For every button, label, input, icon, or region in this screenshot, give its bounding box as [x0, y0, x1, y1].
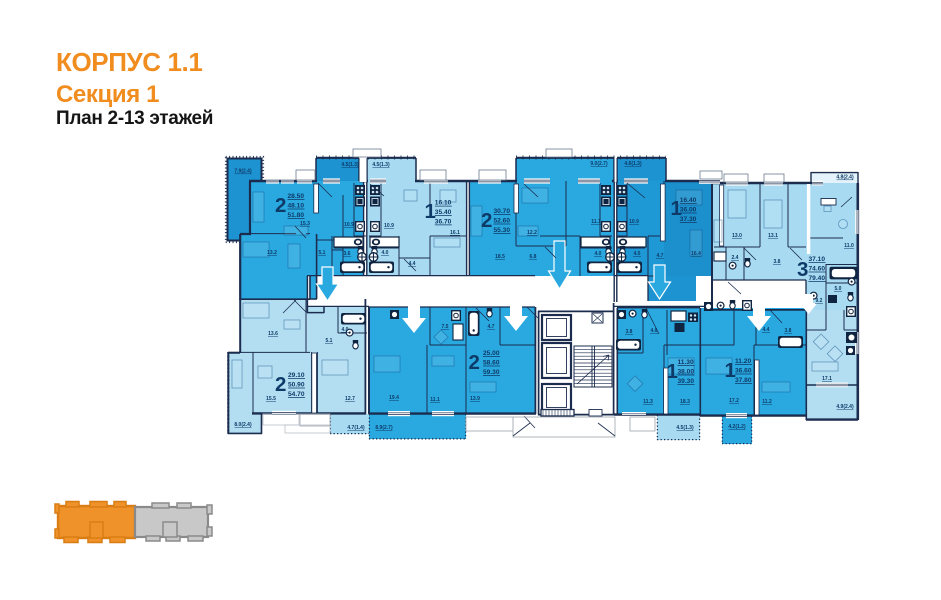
svg-text:3: 3	[797, 258, 808, 281]
svg-text:11.30: 11.30	[678, 359, 694, 366]
svg-text:37.80: 37.80	[735, 377, 752, 384]
svg-text:38.00: 38.00	[678, 368, 695, 375]
svg-text:35.40: 35.40	[435, 209, 452, 216]
svg-text:58.60: 58.60	[483, 359, 500, 366]
svg-text:2: 2	[275, 194, 286, 217]
svg-text:28.50: 28.50	[288, 193, 305, 200]
svg-text:1: 1	[667, 360, 678, 383]
svg-text:2: 2	[275, 373, 286, 396]
svg-text:52.60: 52.60	[494, 217, 511, 224]
svg-text:36.60: 36.60	[735, 367, 752, 374]
svg-text:16.10: 16.10	[435, 200, 452, 207]
svg-text:51.80: 51.80	[288, 212, 305, 219]
svg-text:54.70: 54.70	[288, 391, 305, 398]
svg-text:36.70: 36.70	[435, 218, 452, 225]
svg-text:16.40: 16.40	[680, 197, 697, 204]
svg-text:30.70: 30.70	[494, 208, 511, 215]
svg-text:50.90: 50.90	[288, 381, 305, 388]
svg-text:36.00: 36.00	[680, 206, 697, 213]
svg-text:55.30: 55.30	[494, 227, 511, 234]
svg-text:79.40: 79.40	[809, 275, 826, 282]
svg-text:29.10: 29.10	[288, 372, 305, 379]
svg-text:59.30: 59.30	[483, 369, 500, 376]
svg-text:2: 2	[481, 209, 492, 232]
svg-text:48.10: 48.10	[288, 202, 305, 209]
svg-text:74.60: 74.60	[809, 265, 826, 272]
svg-text:39.30: 39.30	[678, 378, 695, 385]
svg-text:2: 2	[469, 351, 480, 374]
svg-text:11.20: 11.20	[735, 358, 751, 365]
svg-text:37.30: 37.30	[680, 216, 697, 223]
svg-text:37.10: 37.10	[809, 256, 826, 263]
svg-text:25.00: 25.00	[483, 350, 500, 357]
